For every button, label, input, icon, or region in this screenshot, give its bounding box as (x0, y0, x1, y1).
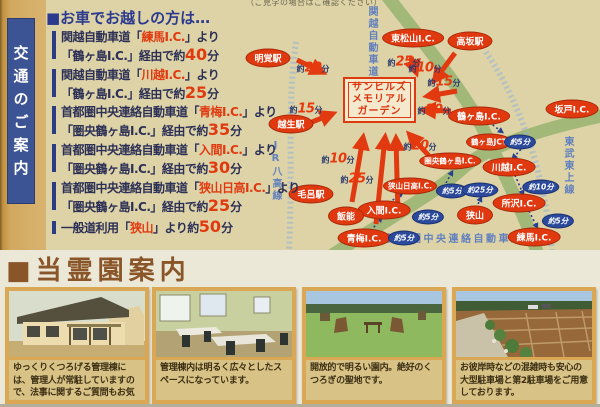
parking-plots-illustration (456, 291, 592, 357)
facility-name-line: メモリアル (352, 94, 407, 106)
map-location-node: 狭山日高I.C. (383, 178, 437, 195)
entry-bullet (52, 182, 56, 210)
direction-line: 「鶴ヶ島I.C.」経由で約40分 (61, 46, 219, 65)
direction-entry: 首都圏中央連絡自動車道「青梅I.C.」より 「圏央鶴ヶ島I.C.」経由で約35分 (52, 103, 277, 140)
directions-title: ■お車でお越しの方は… (46, 7, 210, 28)
map-location-node: 高坂駅 (447, 32, 492, 51)
map-location-node: 入間I.C. (358, 201, 411, 220)
top-note: （ご見学の場合はご確認ください） (246, 0, 382, 8)
travel-time-label: 約20分 (296, 57, 329, 76)
kanetsu-expressway-label: 関越自動車道 (364, 6, 379, 78)
map-location-node: 狭山 (457, 206, 493, 225)
map-location-node: 飯能 (328, 207, 364, 226)
map-location-node: 川越I.C. (483, 158, 536, 177)
entry-bullet (52, 69, 56, 97)
building-exterior-illustration (9, 291, 145, 357)
photo-parking-and-plots: お彼岸時などの混雑時も安心の大型駐車場と第2駐車場をご用意しております。 (452, 287, 596, 404)
map-duration-node: 約5分 (388, 231, 420, 246)
travel-time-label: 約25分 (340, 168, 373, 187)
map-location-node: 所沢I.C. (493, 194, 546, 213)
entry-bullet (52, 221, 56, 234)
entry-bullet (52, 106, 56, 134)
travel-time-label: 約10分 (321, 148, 354, 167)
facility-name-line: サンヒルズ (352, 82, 407, 94)
direction-entry: 一般道利用「狭山」より約50分 (52, 218, 233, 237)
photo-management-building-interior: 管理棟内は明るく広々としたスペースになっています。 (152, 287, 296, 404)
direction-line: 関越自動車道「川越I.C.」より (61, 66, 219, 84)
direction-entry: 関越自動車道「川越I.C.」より 「鶴ヶ島I.C.」経由で約25分 (52, 66, 219, 103)
map-location-node: 坂戸I.C. (546, 100, 599, 119)
facility-name-line: ガーデン (358, 106, 402, 118)
direction-line: 首都圏中央連絡自動車道「青梅I.C.」より (61, 103, 277, 121)
direction-line: 一般道利用「狭山」より約50分 (61, 218, 233, 237)
brochure-page: 交通のご案内 （ご見学の場合はご確認ください） (0, 0, 600, 407)
direction-entry: 首都圏中央連絡自動車道「入間I.C.」より 「圏央鶴ヶ島I.C.」経由で約30分 (52, 141, 277, 178)
direction-line: 「圏央鶴ヶ島I.C.」経由で約25分 (61, 197, 300, 216)
map-duration-node: 約5分 (412, 210, 444, 225)
map-duration-node: 約5分 (504, 135, 536, 150)
photo-management-building-exterior: ゆっくりくつろげる管理棟には、管理人が常駐していますので、法事に関するご質問もお… (5, 287, 149, 404)
direction-entry: 首都圏中央連絡自動車道「狭山日高I.C.」より 「圏央鶴ヶ島I.C.」経由で約2… (52, 179, 300, 216)
photo-caption: ゆっくりくつろげる管理棟には、管理人が常駐していますので、法事に関するご質問もお… (9, 360, 145, 400)
facility-name-box: サンヒルズ メモリアル ガーデン (343, 77, 416, 123)
direction-line: 首都圏中央連絡自動車道「狭山日高I.C.」より (61, 179, 300, 197)
map-duration-node: 約5分 (542, 214, 574, 229)
direction-line: 「圏央鶴ヶ島I.C.」経由で約30分 (61, 159, 277, 178)
garden-lawn-illustration (306, 291, 442, 357)
map-location-node: 東松山I.C. (382, 29, 444, 48)
map-location-node: 練馬I.C. (508, 228, 561, 247)
direction-entry: 関越自動車道「練馬I.C.」より 「鶴ヶ島I.C.」経由で約40分 (52, 28, 219, 65)
direction-line: 「圏央鶴ヶ島I.C.」経由で約35分 (61, 121, 277, 140)
travel-time-label: 約20分 (417, 99, 450, 118)
direction-line: 「鶴ヶ島I.C.」経由で約25分 (61, 84, 219, 103)
photo-caption: 管理棟内は明るく広々としたスペースになっています。 (156, 360, 292, 400)
direction-line: 関越自動車道「練馬I.C.」より (61, 28, 219, 46)
photo-caption: お彼岸時などの混雑時も安心の大型駐車場と第2駐車場をご用意しております。 (456, 360, 592, 400)
map-location-node: 鶴ヶ島I.C. (448, 107, 510, 126)
photo-caption: 開放的で明るい園内。絶好のくつろぎの聖地です。 (306, 360, 442, 400)
cemetery-guide-section: ■当霊園案内 ゆっくりくつ (0, 250, 600, 407)
building-interior-illustration (156, 291, 292, 357)
travel-time-label: 約15分 (427, 71, 460, 90)
tobu-tojo-line-label: 東武東上線 (560, 136, 575, 196)
entry-bullet (52, 144, 56, 172)
map-location-node: 圏央鶴ヶ島I.C. (419, 153, 481, 170)
map-location-node: 青梅I.C. (338, 229, 391, 248)
cemetery-guide-title: ■当霊園案内 (6, 250, 191, 287)
direction-line: 首都圏中央連絡自動車道「入間I.C.」より (61, 141, 277, 159)
map-location-node: 明覚駅 (245, 49, 290, 68)
entry-bullet (52, 31, 56, 59)
travel-time-label: 約20分 (403, 135, 436, 154)
photo-garden-lawn: 開放的で明るい園内。絶好のくつろぎの聖地です。 (302, 287, 446, 404)
